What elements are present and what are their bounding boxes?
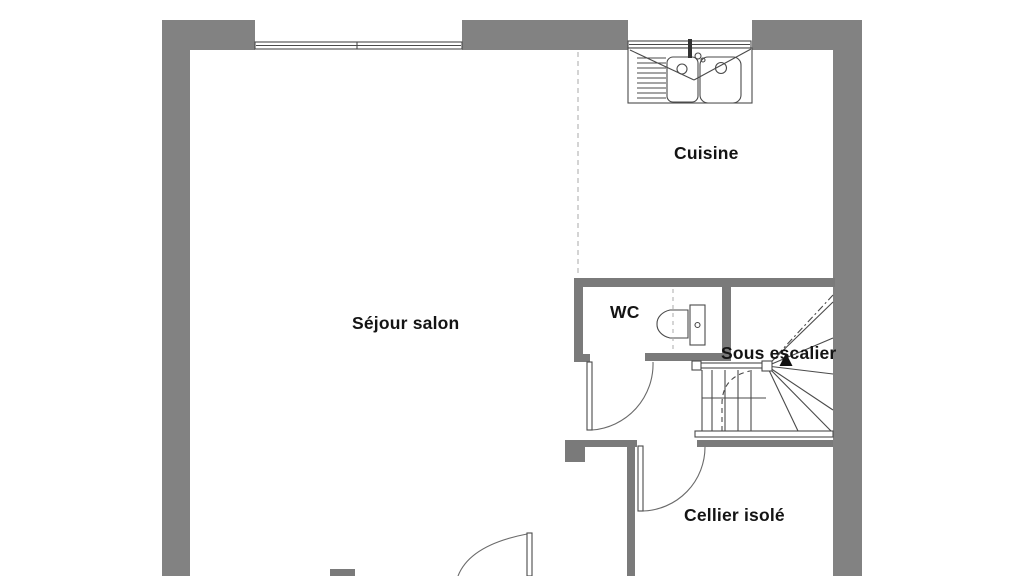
winder-staircase xyxy=(692,295,833,437)
plan-linework xyxy=(0,0,1024,576)
door-sejour-bottom xyxy=(458,533,532,576)
toilet-icon xyxy=(657,305,705,345)
room-label-sous-escalier: Sous escalier xyxy=(721,343,836,364)
window-sejour-icon xyxy=(255,42,462,49)
door-cellier xyxy=(638,446,705,511)
stair-newel-left xyxy=(692,361,701,370)
room-label-cellier: Cellier isolé xyxy=(684,505,785,526)
room-label-wc: WC xyxy=(610,302,640,323)
room-label-sejour: Séjour salon xyxy=(352,313,459,334)
floor-plan: Cuisine Séjour salon WC Sous escalier Ce… xyxy=(0,0,1024,576)
room-label-cuisine: Cuisine xyxy=(674,143,739,164)
kitchen-double-sink-icon xyxy=(628,39,752,103)
stair-bottom-rail xyxy=(695,431,833,437)
door-wc xyxy=(587,362,653,430)
